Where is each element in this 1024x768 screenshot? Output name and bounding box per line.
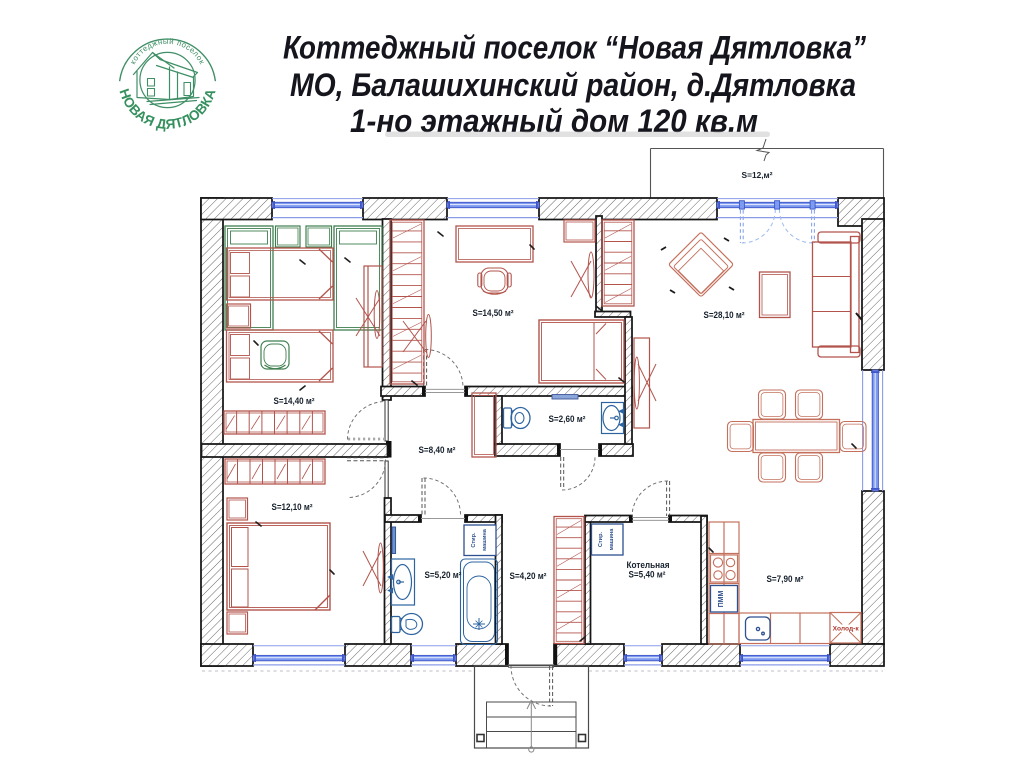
svg-text:S=14,50 м²: S=14,50 м² xyxy=(473,308,514,318)
svg-text:S=12,м²: S=12,м² xyxy=(742,170,773,180)
svg-text:S=8,40 м²: S=8,40 м² xyxy=(419,445,456,455)
svg-text:Стир.: Стир. xyxy=(598,531,604,547)
svg-text:S=7,90 м²: S=7,90 м² xyxy=(767,574,804,584)
svg-text:S=12,10 м²: S=12,10 м² xyxy=(272,502,313,512)
svg-text:машина: машина xyxy=(609,528,615,551)
svg-text:Коттеджный поселок “Новая Дятл: Коттеджный поселок “Новая Дятловка” xyxy=(283,30,866,66)
svg-text:S=4,20 м²: S=4,20 м² xyxy=(510,571,547,581)
svg-text:S=5,20 м²: S=5,20 м² xyxy=(425,570,462,580)
svg-text:Холод-к: Холод-к xyxy=(833,627,859,633)
svg-text:машина: машина xyxy=(482,528,488,551)
svg-text:S=14,40 м²: S=14,40 м² xyxy=(274,396,315,406)
svg-text:Котельная: Котельная xyxy=(627,560,670,570)
svg-text:S=5,40 м²: S=5,40 м² xyxy=(629,570,666,580)
svg-text:S=28,10 м²: S=28,10 м² xyxy=(704,310,745,320)
svg-text:ПММ: ПММ xyxy=(718,590,725,607)
svg-text:Стир.: Стир. xyxy=(471,532,477,548)
svg-text:МО, Балашихинский район, д.Дят: МО, Балашихинский район, д.Дятловка xyxy=(290,67,856,103)
svg-text:S=2,60 м²: S=2,60 м² xyxy=(549,414,586,424)
